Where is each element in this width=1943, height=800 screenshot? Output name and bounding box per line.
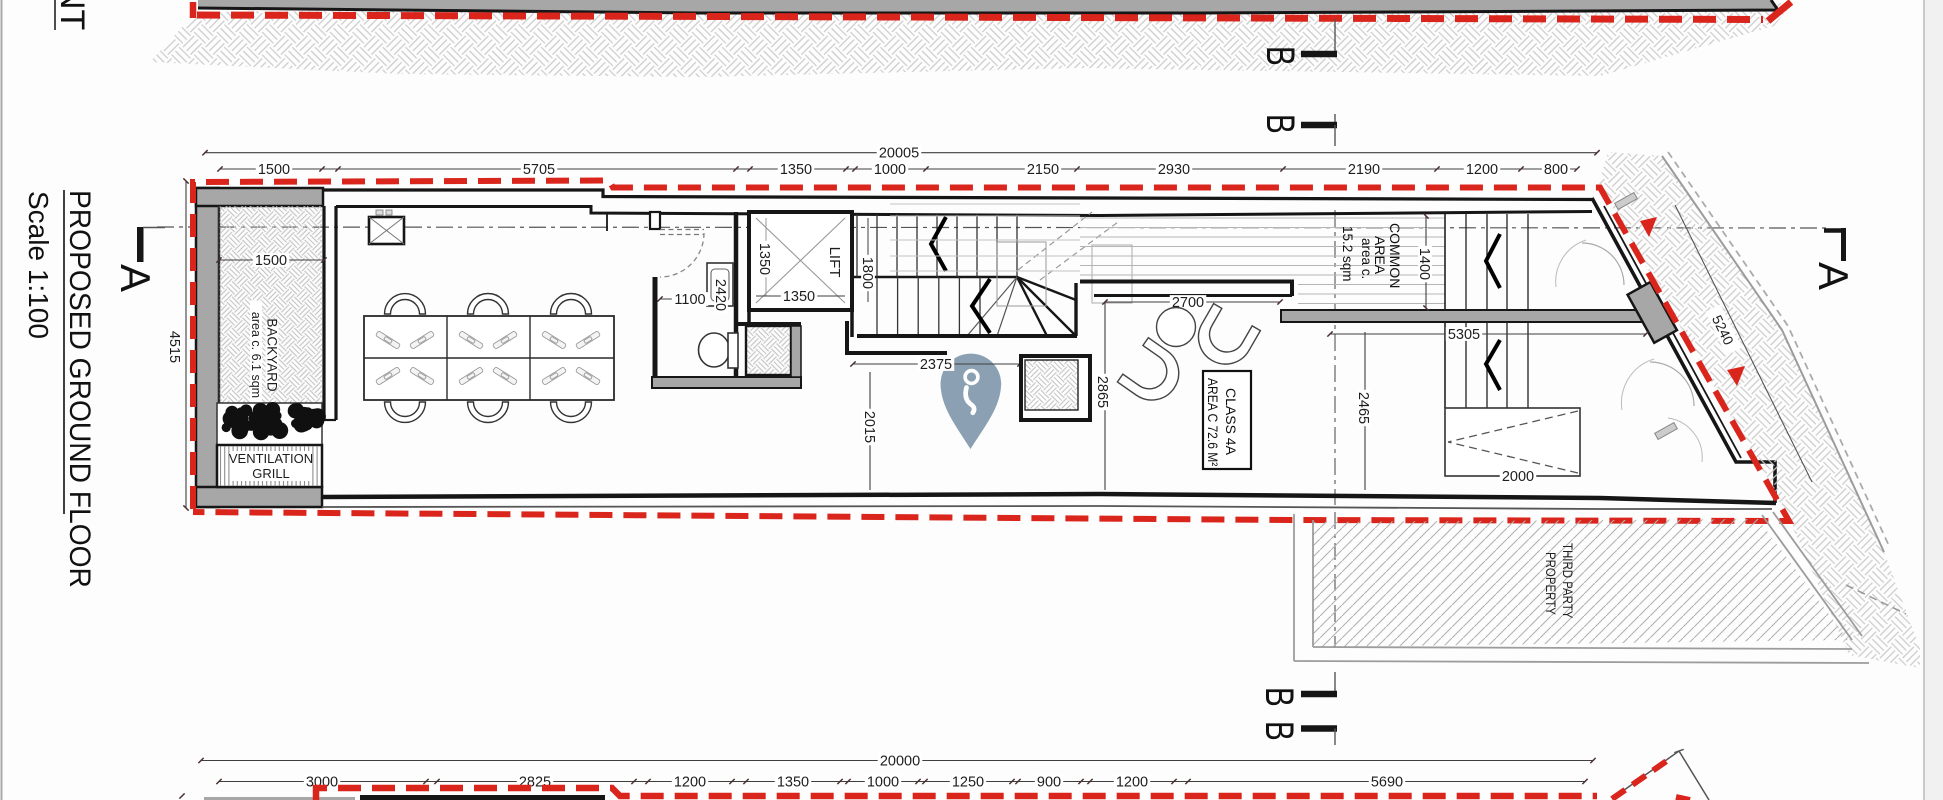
- svg-text:800: 800: [1544, 162, 1568, 178]
- svg-text:A: A: [112, 264, 159, 292]
- svg-text:5305: 5305: [1448, 327, 1480, 343]
- svg-text:CLASS 4A: CLASS 4A: [1223, 388, 1239, 456]
- svg-text:AREA C 72.6 M²: AREA C 72.6 M²: [1205, 378, 1221, 467]
- svg-text:900: 900: [1037, 774, 1061, 790]
- svg-text:1200: 1200: [1116, 774, 1148, 790]
- svg-text:B: B: [1257, 687, 1301, 707]
- svg-text:PROPOSED GROUND FLOOR: PROPOSED GROUND FLOOR: [63, 190, 96, 588]
- svg-text:5705: 5705: [523, 162, 555, 178]
- svg-text:BACKYARD: BACKYARD: [264, 318, 279, 392]
- svg-text:1500: 1500: [258, 162, 290, 178]
- svg-text:1000: 1000: [874, 162, 906, 178]
- svg-text:1350: 1350: [780, 162, 812, 178]
- svg-text:1400: 1400: [1416, 248, 1432, 280]
- svg-text:2930: 2930: [1158, 162, 1190, 178]
- svg-text:2865: 2865: [1094, 376, 1110, 408]
- svg-text:1000: 1000: [867, 774, 899, 790]
- svg-text:B: B: [1258, 114, 1302, 134]
- svg-text:area c.: area c.: [1359, 238, 1374, 279]
- svg-text:2465: 2465: [1355, 392, 1371, 424]
- svg-text:LIFT: LIFT: [826, 247, 843, 278]
- svg-text:Scale 1:100: Scale 1:100: [23, 191, 54, 339]
- svg-text:2420: 2420: [712, 279, 728, 311]
- svg-text:2015: 2015: [861, 411, 877, 443]
- svg-text:1350: 1350: [756, 243, 772, 275]
- svg-text:2000: 2000: [1502, 469, 1534, 485]
- svg-text:2150: 2150: [1027, 162, 1059, 178]
- svg-text:4515: 4515: [166, 331, 182, 363]
- svg-text:1500: 1500: [255, 253, 287, 269]
- svg-text:GRILL: GRILL: [252, 466, 290, 481]
- svg-text:B: B: [1257, 721, 1301, 741]
- svg-text:2190: 2190: [1348, 162, 1380, 178]
- svg-text:NT: NT: [53, 0, 91, 30]
- svg-text:VENTILATION: VENTILATION: [229, 451, 313, 466]
- svg-text:THIRD PARTY: THIRD PARTY: [1560, 543, 1575, 619]
- svg-text:5690: 5690: [1371, 774, 1403, 790]
- svg-text:PROPERTY: PROPERTY: [1543, 552, 1558, 615]
- svg-text:B: B: [1258, 46, 1302, 66]
- svg-text:1350: 1350: [777, 774, 809, 790]
- svg-text:1250: 1250: [952, 774, 984, 790]
- svg-text:1800: 1800: [859, 257, 875, 289]
- svg-text:COMMON: COMMON: [1387, 223, 1403, 288]
- svg-text:1200: 1200: [1466, 162, 1498, 178]
- svg-text:2375: 2375: [920, 357, 952, 373]
- svg-text:A: A: [1810, 262, 1857, 290]
- svg-text:1100: 1100: [674, 292, 705, 308]
- svg-text:1200: 1200: [674, 774, 706, 790]
- svg-text:area c. 6.1 sqm: area c. 6.1 sqm: [249, 312, 263, 398]
- svg-text:1350: 1350: [783, 289, 815, 305]
- svg-text:15.2 sqm: 15.2 sqm: [1340, 226, 1355, 282]
- svg-text:20000: 20000: [880, 753, 920, 769]
- svg-text:20005: 20005: [879, 146, 919, 162]
